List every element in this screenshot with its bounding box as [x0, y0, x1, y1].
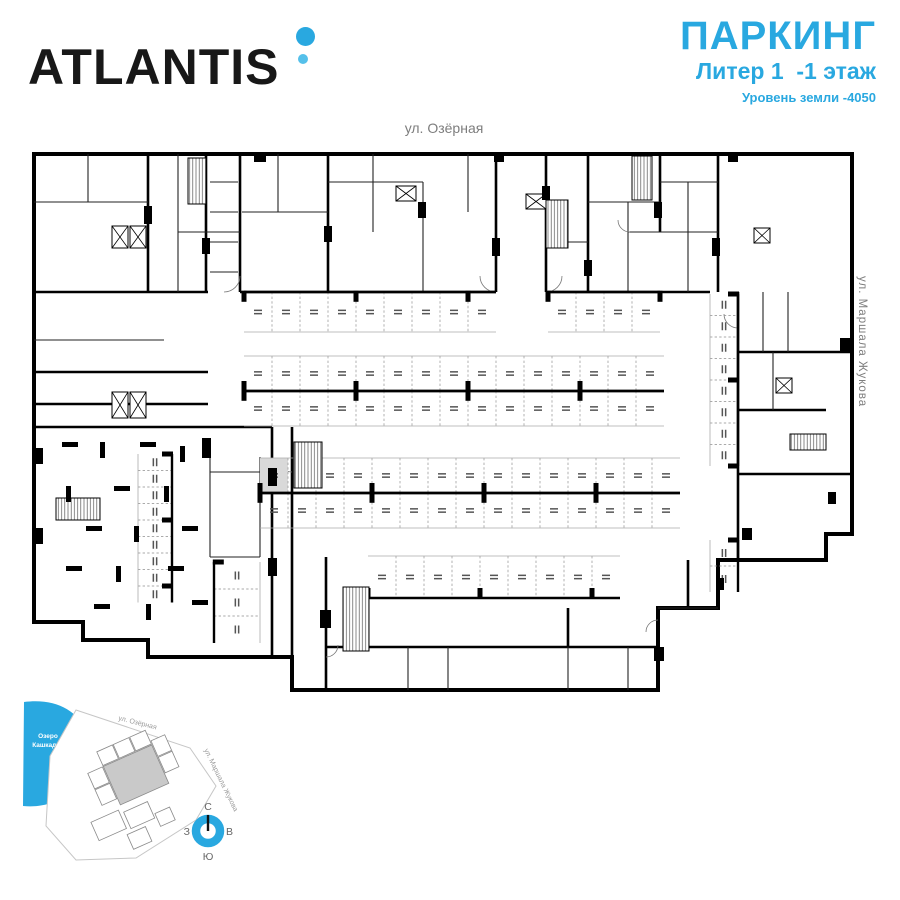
ground-level-note: Уровень земли -4050 [680, 90, 876, 105]
stairs-icon [343, 587, 369, 651]
column-mark [62, 442, 78, 447]
wall-block [202, 438, 211, 458]
wall-block [34, 448, 43, 464]
elevator-icon [112, 392, 128, 418]
wall-block [202, 238, 210, 254]
parking-row [213, 560, 260, 644]
elevator-icon [754, 228, 770, 243]
interior-walls-thick [34, 154, 852, 690]
wall-block [324, 226, 332, 242]
elevator-icon [130, 392, 146, 418]
parking-row [138, 452, 173, 603]
site-minimap: Озеро Кашкадан ул. Озёрная ул. Маршала Ж… [18, 698, 258, 870]
column-mark [66, 566, 82, 571]
wall-block [268, 468, 277, 486]
wall-block [712, 238, 720, 256]
column-mark [94, 604, 110, 609]
elevator-icon [396, 186, 416, 201]
stairs-icon [294, 442, 322, 488]
elevator-icon [130, 226, 146, 248]
column-mark [140, 442, 156, 447]
stairs-icon [56, 498, 100, 520]
elevator-icon [776, 378, 792, 393]
column-mark [134, 526, 139, 542]
wall-blocks-layer [34, 154, 850, 661]
compass-east: В [226, 826, 233, 838]
sheet-subtitle: Литер 1 -1 этаж [680, 58, 876, 86]
wall-block [144, 206, 152, 224]
column-mark [180, 446, 185, 462]
wall-block [320, 610, 331, 628]
sheet-title-block: ПАРКИНГ Литер 1 -1 этаж Уровень земли -4… [680, 14, 876, 105]
wall-block [494, 154, 504, 162]
compass-south: Ю [203, 851, 214, 863]
wall-block [728, 154, 738, 162]
wall-block [542, 186, 550, 200]
elevators-layer [112, 186, 792, 418]
column-mark [66, 486, 71, 502]
stairs-icon [188, 158, 206, 204]
street-label-ozyornaya: ул. Озёрная [0, 120, 888, 136]
wall-block [492, 238, 500, 256]
wall-block [254, 154, 266, 162]
compass-west: З [184, 826, 190, 838]
column-mark [100, 442, 105, 458]
wall-block [840, 338, 850, 352]
column-mark [192, 600, 208, 605]
column-mark [182, 526, 198, 531]
stairs-icon [790, 434, 826, 450]
parking-stalls-layer [138, 291, 739, 643]
compass-north: С [204, 801, 212, 813]
wall-block [716, 578, 724, 590]
wall-block [34, 528, 43, 544]
parking-row [258, 492, 681, 528]
parking-row [546, 291, 663, 332]
wall-block [268, 558, 277, 576]
sheet-title: ПАРКИНГ [680, 14, 876, 58]
column-mark [168, 566, 184, 571]
column-mark [146, 604, 151, 620]
column-mark [86, 526, 102, 531]
floor-plan [28, 142, 860, 704]
parking-row [242, 356, 665, 392]
column-mark [114, 486, 130, 491]
logo-dot-large-icon [296, 27, 315, 46]
wall-block [654, 647, 664, 661]
stairs-icon [546, 200, 568, 248]
wall-block [742, 528, 752, 540]
parking-row [710, 538, 739, 593]
parking-row [242, 291, 497, 332]
logo-dot-small-icon [298, 54, 308, 64]
column-mark [164, 486, 169, 502]
parking-row [242, 390, 665, 426]
wall-block [828, 492, 836, 504]
wall-block [654, 202, 662, 218]
stairs-icon [632, 156, 652, 200]
wall-block [584, 260, 592, 276]
parking-row [366, 556, 621, 599]
lake-label-line1: Озеро [38, 733, 58, 740]
columns-layer [62, 442, 208, 620]
column-mark [116, 566, 121, 582]
outer-walls [34, 154, 852, 690]
elevator-icon [112, 226, 128, 248]
wall-block [418, 202, 426, 218]
logo-wordmark: ATLANTIS [28, 38, 279, 96]
